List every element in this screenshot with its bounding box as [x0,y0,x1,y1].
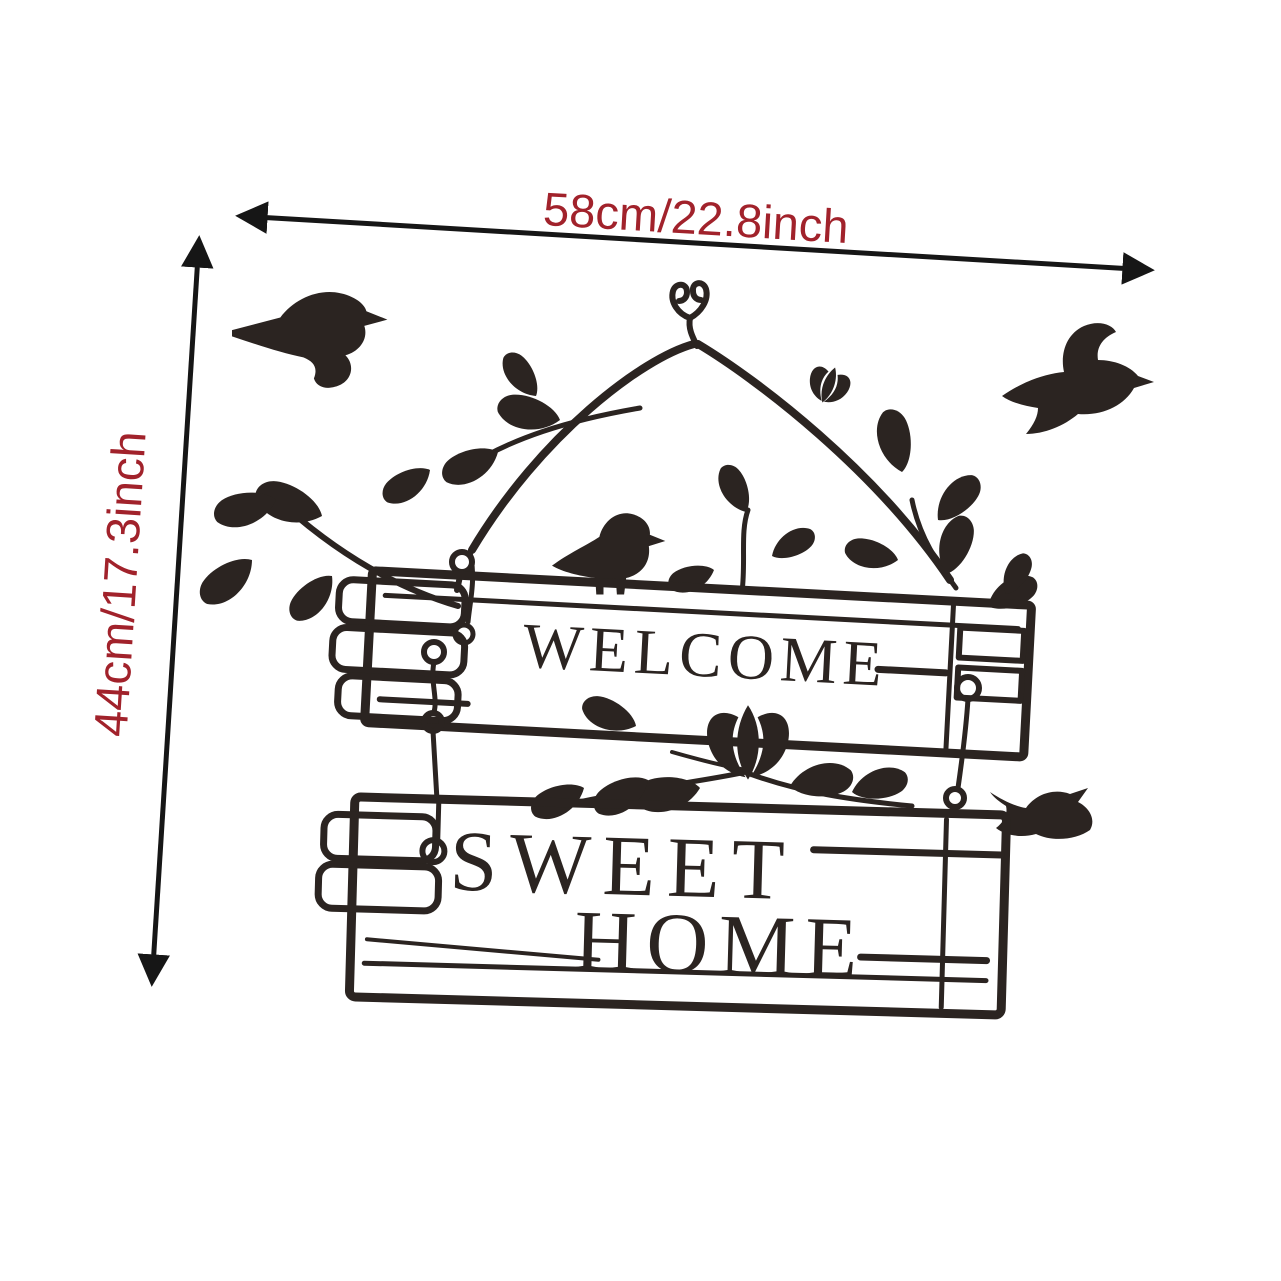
wall-decal-illustration: WELCOME [193,283,1154,1015]
sweet-home-board: SWEET HOME [315,796,1006,1015]
welcome-board-text: WELCOME [521,610,890,700]
home-board-text: HOME [573,892,869,996]
plank-end-icon [323,814,436,861]
flying-bird-left-icon [232,292,387,388]
height-dimension: 44cm/17.3inch [83,240,199,982]
plank-end-icon [957,668,1022,701]
width-dimension: 58cm/22.8inch [240,182,1150,270]
hanging-hook-icon [672,283,706,346]
height-dimension-arrow [152,240,199,982]
plank-end-icon [318,864,439,911]
height-dimension-label: 44cm/17.3inch [83,430,155,738]
sprig-on-board-icon [668,463,818,594]
branch-left-cord-icon [378,348,640,508]
plank-end-icon [959,628,1024,661]
flying-bird-right-icon [1002,323,1154,434]
hanging-cord-right [698,344,950,580]
width-dimension-label: 58cm/22.8inch [542,182,850,253]
branch-right-cord-icon [803,361,1040,612]
flower-bud-icon [803,361,854,410]
product-dimension-diagram: 58cm/22.8inch 44cm/17.3inch [0,0,1281,1281]
